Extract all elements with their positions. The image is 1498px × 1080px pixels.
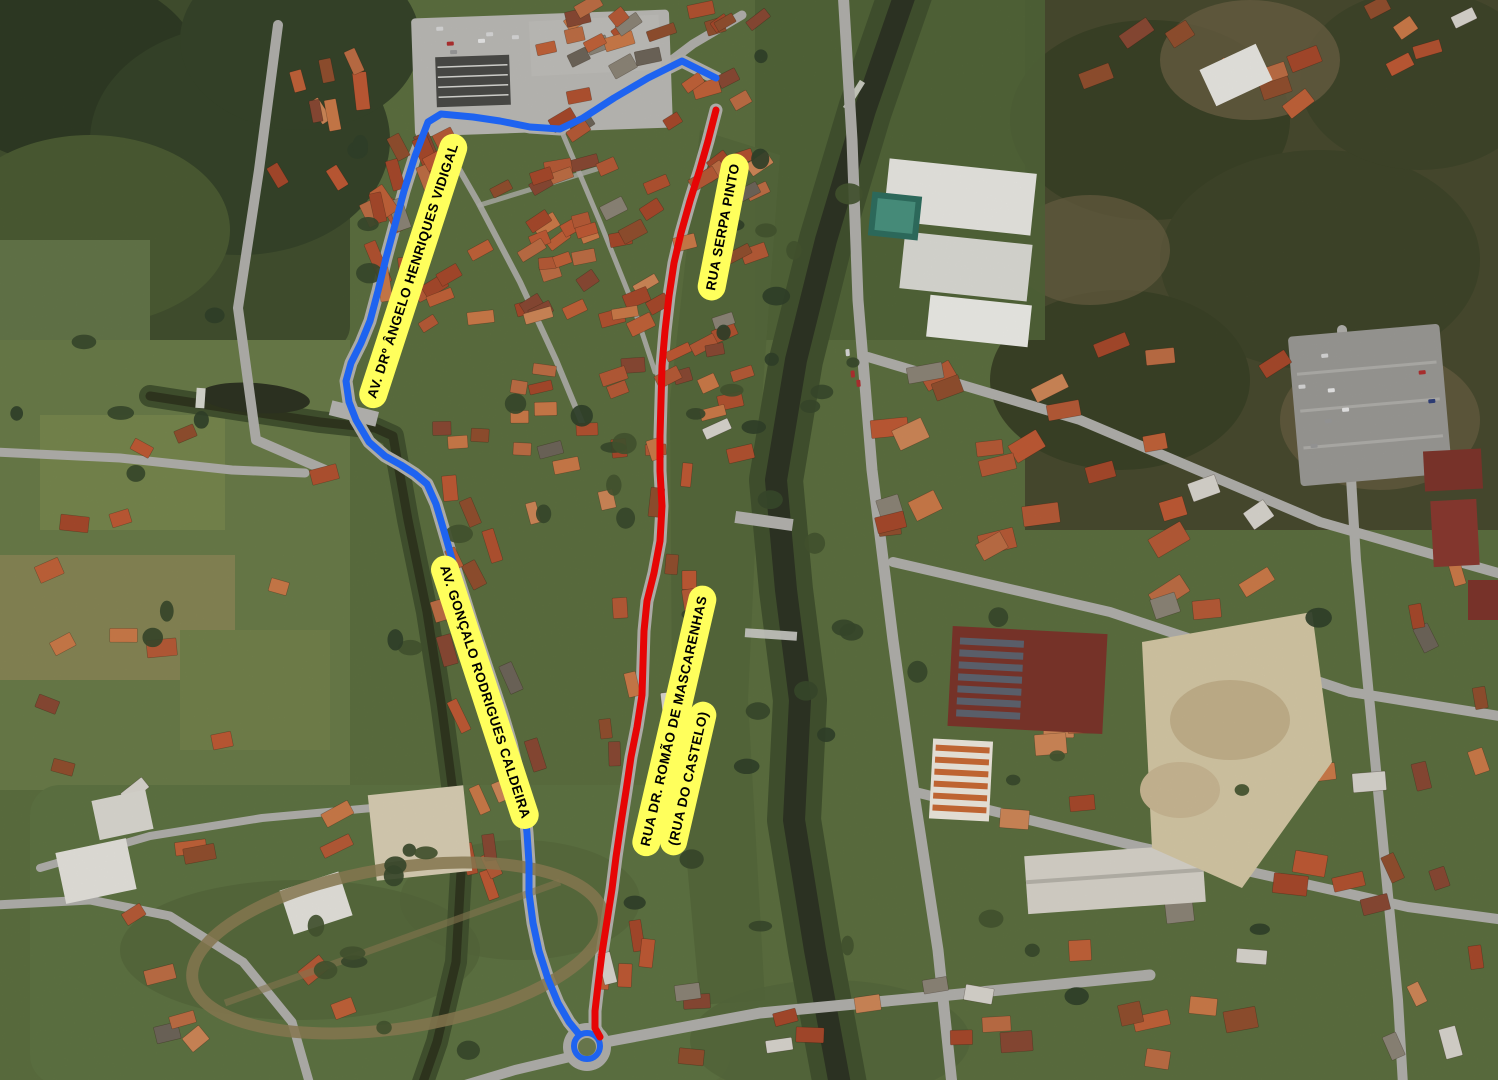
satellite-imagery (0, 0, 1498, 1080)
photo-grain (0, 0, 1498, 1080)
aerial-map: AV. DRº ÂNGELO HENRIQUES VIDIGAL RUA SER… (0, 0, 1498, 1080)
